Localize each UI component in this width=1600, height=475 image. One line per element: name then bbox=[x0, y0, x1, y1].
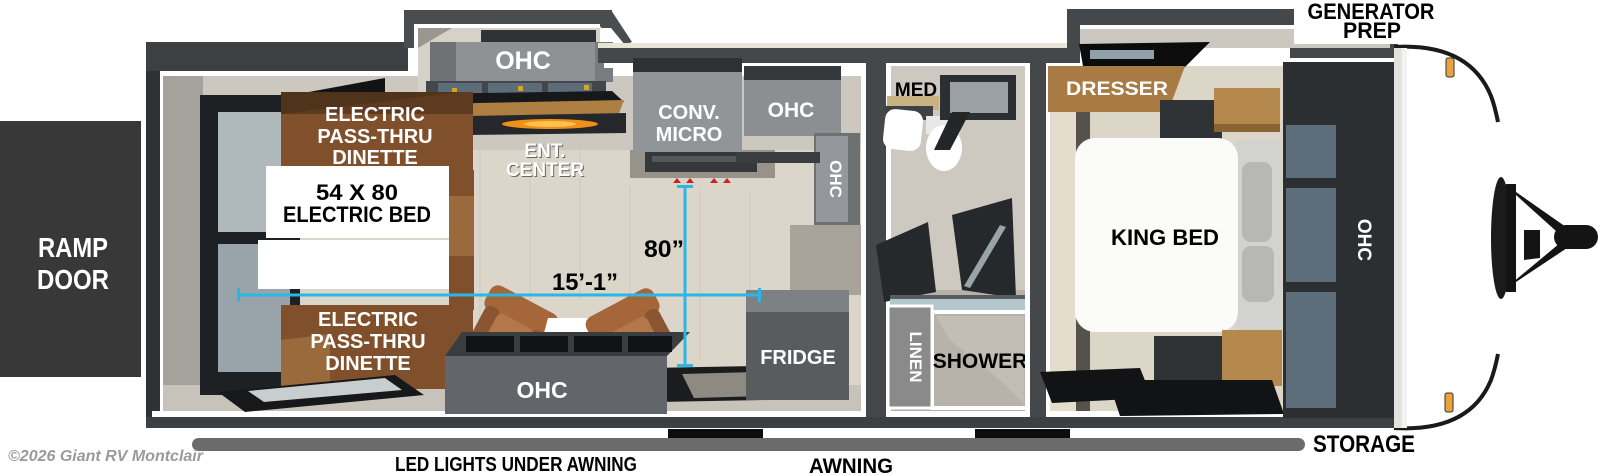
svg-text:DRESSER: DRESSER bbox=[1066, 79, 1168, 100]
svg-text:SHOWER: SHOWER bbox=[933, 350, 1028, 373]
svg-text:LINEN: LINEN bbox=[906, 332, 925, 383]
svg-text:STORAGE: STORAGE bbox=[1313, 431, 1415, 458]
svg-text:DOOR: DOOR bbox=[37, 264, 109, 295]
svg-text:ELECTRIC: ELECTRIC bbox=[325, 104, 425, 126]
svg-text:FRIDGE: FRIDGE bbox=[760, 347, 836, 369]
svg-text:ELECTRIC: ELECTRIC bbox=[318, 309, 418, 331]
svg-text:OHC: OHC bbox=[826, 160, 845, 198]
svg-text:15’-1”: 15’-1” bbox=[552, 269, 618, 296]
svg-text:CONV.: CONV. bbox=[658, 102, 720, 124]
svg-text:AWNING: AWNING bbox=[809, 455, 893, 475]
svg-text:©2026 Giant RV Montclair: ©2026 Giant RV Montclair bbox=[8, 448, 204, 465]
svg-text:MED: MED bbox=[895, 80, 937, 101]
svg-text:PASS-THRU: PASS-THRU bbox=[317, 126, 432, 148]
svg-text:MICRO: MICRO bbox=[656, 124, 723, 146]
svg-text:ENT.: ENT. bbox=[524, 141, 565, 162]
svg-text:OHC: OHC bbox=[516, 377, 567, 403]
svg-text:DINETTE: DINETTE bbox=[325, 353, 411, 375]
svg-text:OHC: OHC bbox=[768, 99, 815, 122]
svg-text:RAMP: RAMP bbox=[38, 232, 108, 263]
svg-text:KING BED: KING BED bbox=[1111, 225, 1219, 250]
svg-text:PASS-THRU: PASS-THRU bbox=[310, 331, 425, 353]
svg-text:PREP: PREP bbox=[1343, 18, 1401, 43]
svg-text:OHC: OHC bbox=[1353, 219, 1374, 262]
svg-text:80”: 80” bbox=[644, 236, 684, 263]
svg-text:CENTER: CENTER bbox=[506, 160, 584, 181]
svg-text:DINETTE: DINETTE bbox=[332, 147, 418, 169]
svg-text:ELECTRIC BED: ELECTRIC BED bbox=[283, 202, 431, 227]
svg-text:OHC: OHC bbox=[495, 47, 551, 75]
svg-text:LED LIGHTS UNDER AWNING: LED LIGHTS UNDER AWNING bbox=[395, 454, 637, 475]
